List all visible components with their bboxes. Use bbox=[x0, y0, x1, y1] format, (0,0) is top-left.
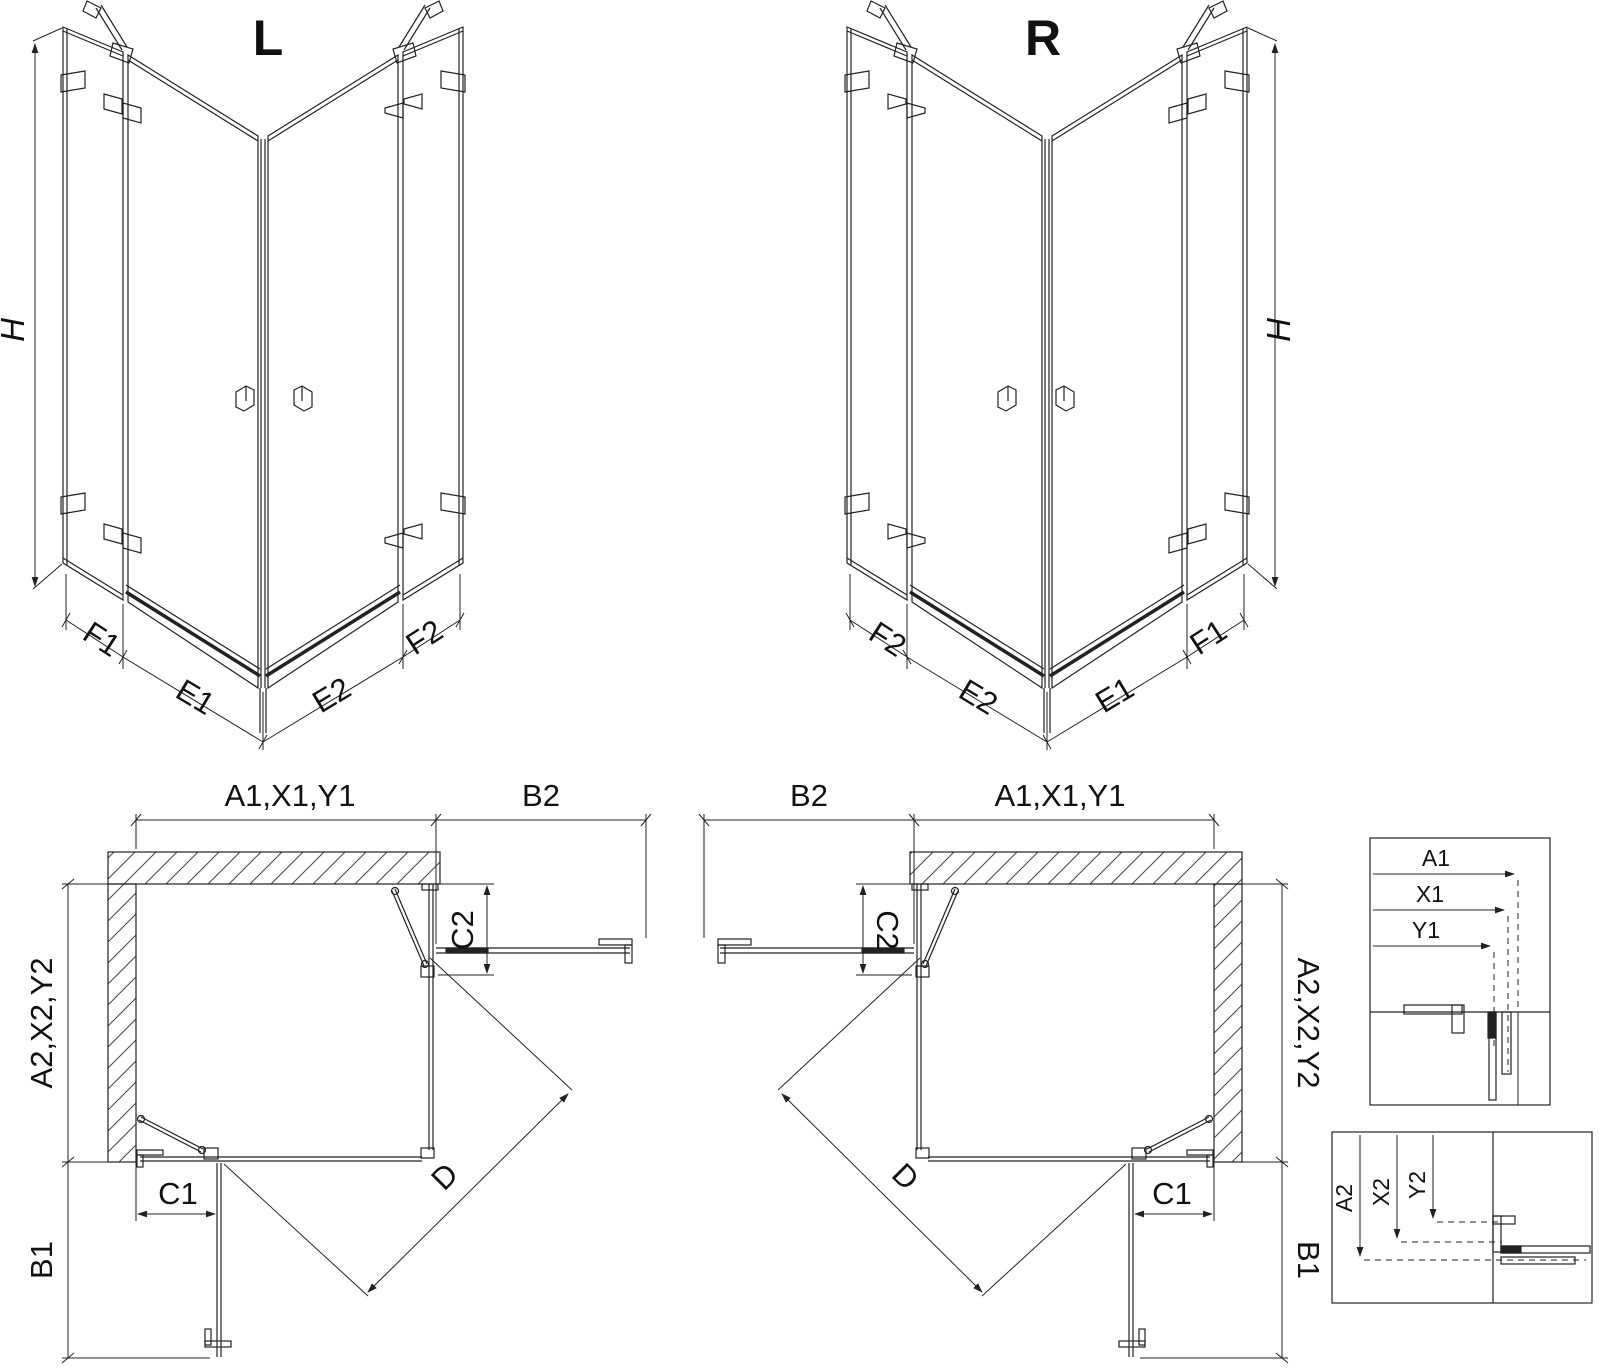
detail-label-y2: Y2 bbox=[1404, 1171, 1430, 1199]
dim-label-c1-left: C1 bbox=[158, 1176, 198, 1211]
dim-label-e1-left: E1 bbox=[170, 672, 221, 722]
plan-view-left bbox=[62, 814, 651, 1363]
dim-label-depth-right: A2,X2,Y2 bbox=[1291, 958, 1326, 1089]
iso-right-labels: R H F2 E2 E1 F1 bbox=[863, 10, 1297, 722]
detail-label-a1: A1 bbox=[1422, 845, 1450, 871]
dim-label-e2-right: E2 bbox=[953, 672, 1004, 722]
dim-label-c2-left: C2 bbox=[445, 910, 480, 950]
shower-enclosure-diagram: L H F1 E1 E2 F2 R H F2 E2 E1 F1 A1,X1,Y1… bbox=[0, 0, 1600, 1371]
dim-label-e1-right: E1 bbox=[1089, 670, 1140, 720]
dim-label-b1-left: B1 bbox=[24, 1241, 59, 1279]
plan-view-right bbox=[699, 814, 1288, 1363]
dim-label-c2-right: C2 bbox=[870, 910, 905, 950]
iso-left-title: L bbox=[253, 10, 284, 66]
detail-box-depth bbox=[1332, 1132, 1592, 1303]
dim-label-top-width-left: A1,X1,Y1 bbox=[225, 778, 356, 813]
wall-side-right-plan bbox=[1214, 884, 1242, 1162]
plan-right-walls bbox=[910, 852, 1242, 1162]
detail-label-a2: A2 bbox=[1331, 1184, 1357, 1212]
wall-profile-section bbox=[1404, 1005, 1462, 1014]
iso-right-title: R bbox=[1025, 10, 1061, 66]
wall-top-left-plan bbox=[108, 852, 440, 884]
dim-label-b1-right: B1 bbox=[1291, 1241, 1326, 1279]
dim-label-e2-left: E2 bbox=[306, 670, 357, 720]
detail-depth-labels: A2 X2 Y2 bbox=[1331, 1171, 1430, 1212]
wall-profile-section bbox=[1493, 1216, 1501, 1252]
dim-label-d-left: D bbox=[424, 1156, 465, 1197]
dim-label-top-width-right: A1,X1,Y1 bbox=[995, 778, 1126, 813]
dim-label-c1-right: C1 bbox=[1152, 1176, 1192, 1211]
dim-label-d-right: D bbox=[885, 1156, 926, 1197]
dim-label-b2-left: B2 bbox=[522, 778, 560, 813]
plan-left-walls bbox=[108, 852, 440, 1162]
dim-label-f2-right: F2 bbox=[863, 615, 912, 664]
wall-side-left-plan bbox=[108, 884, 136, 1162]
dim-label-f1-left: F1 bbox=[77, 615, 126, 664]
dim-label-height-left: H bbox=[0, 318, 31, 342]
detail-box-width bbox=[1370, 838, 1550, 1105]
dim-label-b2-right: B2 bbox=[790, 778, 828, 813]
detail-width-labels: A1 X1 Y1 bbox=[1412, 845, 1450, 943]
wall-top-right-plan bbox=[910, 852, 1242, 884]
dim-label-height-right: H bbox=[1260, 318, 1297, 342]
dim-label-depth-left: A2,X2,Y2 bbox=[24, 958, 59, 1089]
detail-label-x1: X1 bbox=[1416, 881, 1444, 907]
technical-drawing-page: L H F1 E1 E2 F2 R H F2 E2 E1 F1 A1,X1,Y1… bbox=[0, 0, 1600, 1371]
detail-label-y1: Y1 bbox=[1412, 917, 1440, 943]
detail-label-x2: X2 bbox=[1368, 1178, 1394, 1206]
